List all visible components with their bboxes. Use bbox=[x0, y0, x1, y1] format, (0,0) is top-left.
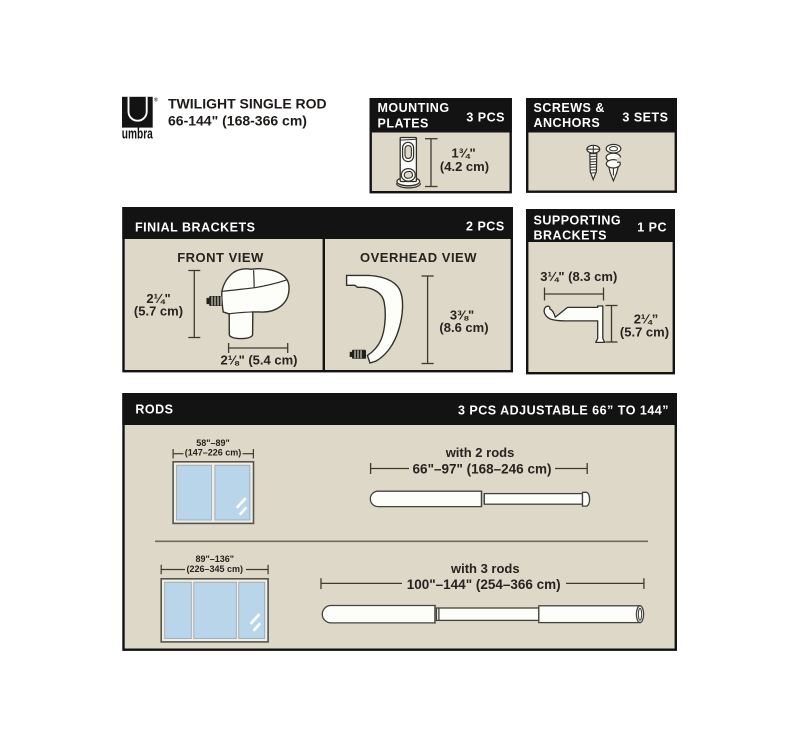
svg-text:1 PC: 1 PC bbox=[637, 220, 667, 234]
svg-text:100"–144" (254–366 cm): 100"–144" (254–366 cm) bbox=[407, 577, 561, 592]
svg-text:2⅛" (5.4 cm): 2⅛" (5.4 cm) bbox=[221, 353, 298, 368]
svg-text:3 PCS: 3 PCS bbox=[466, 111, 505, 125]
svg-text:(226–345 cm): (226–345 cm) bbox=[187, 564, 244, 574]
svg-text:PLATES: PLATES bbox=[378, 116, 429, 130]
svg-text:66-144" (168-366 cm): 66-144" (168-366 cm) bbox=[168, 112, 307, 128]
svg-text:(5.7 cm): (5.7 cm) bbox=[620, 325, 669, 340]
svg-text:MOUNTING: MOUNTING bbox=[378, 101, 450, 115]
svg-text:®: ® bbox=[154, 97, 158, 104]
svg-text:3 PCS ADJUSTABLE 66” TO 144”: 3 PCS ADJUSTABLE 66” TO 144” bbox=[458, 404, 669, 418]
svg-text:ANCHORS: ANCHORS bbox=[534, 116, 601, 130]
svg-text:(8.6 cm): (8.6 cm) bbox=[439, 320, 488, 335]
svg-text:with 2 rods: with 2 rods bbox=[445, 445, 515, 460]
svg-text:3¼" (8.3 cm): 3¼" (8.3 cm) bbox=[540, 269, 617, 284]
svg-text:OVERHEAD VIEW: OVERHEAD VIEW bbox=[360, 250, 477, 265]
svg-text:SCREWS &: SCREWS & bbox=[534, 101, 605, 115]
svg-text:58"–89": 58"–89" bbox=[196, 438, 230, 448]
svg-text:(5.7 cm): (5.7 cm) bbox=[134, 303, 183, 318]
svg-text:SUPPORTING: SUPPORTING bbox=[534, 213, 622, 227]
svg-text:2 PCS: 2 PCS bbox=[466, 220, 505, 234]
svg-text:66"–97" (168–246 cm): 66"–97" (168–246 cm) bbox=[413, 462, 552, 477]
svg-text:(4.2 cm): (4.2 cm) bbox=[440, 159, 489, 174]
svg-text:umbra: umbra bbox=[122, 126, 153, 143]
svg-text:FRONT VIEW: FRONT VIEW bbox=[177, 250, 264, 265]
svg-text:(147–226 cm): (147–226 cm) bbox=[185, 448, 242, 458]
svg-text:with 3 rods: with 3 rods bbox=[450, 561, 520, 576]
svg-text:BRACKETS: BRACKETS bbox=[534, 228, 607, 242]
svg-text:RODS: RODS bbox=[135, 403, 173, 417]
svg-text:3 SETS: 3 SETS bbox=[622, 111, 668, 125]
svg-text:89"–136": 89"–136" bbox=[196, 554, 235, 564]
svg-text:TWILIGHT SINGLE ROD: TWILIGHT SINGLE ROD bbox=[168, 95, 327, 111]
svg-text:FINIAL BRACKETS: FINIAL BRACKETS bbox=[135, 220, 255, 234]
